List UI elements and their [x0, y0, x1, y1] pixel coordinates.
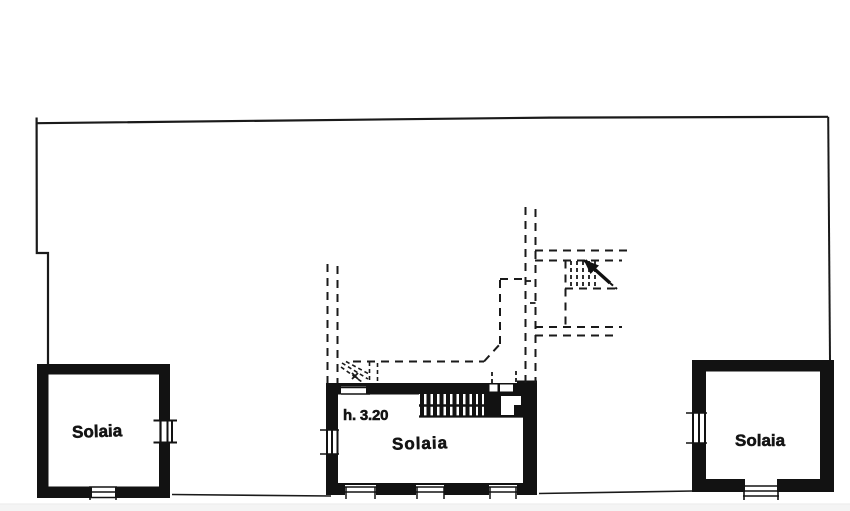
svg-text:Solaia: Solaia: [392, 433, 449, 453]
svg-text:h. 3.20: h. 3.20: [343, 407, 388, 424]
svg-text:Solaia: Solaia: [735, 431, 786, 450]
svg-text:Solaia: Solaia: [72, 421, 123, 442]
